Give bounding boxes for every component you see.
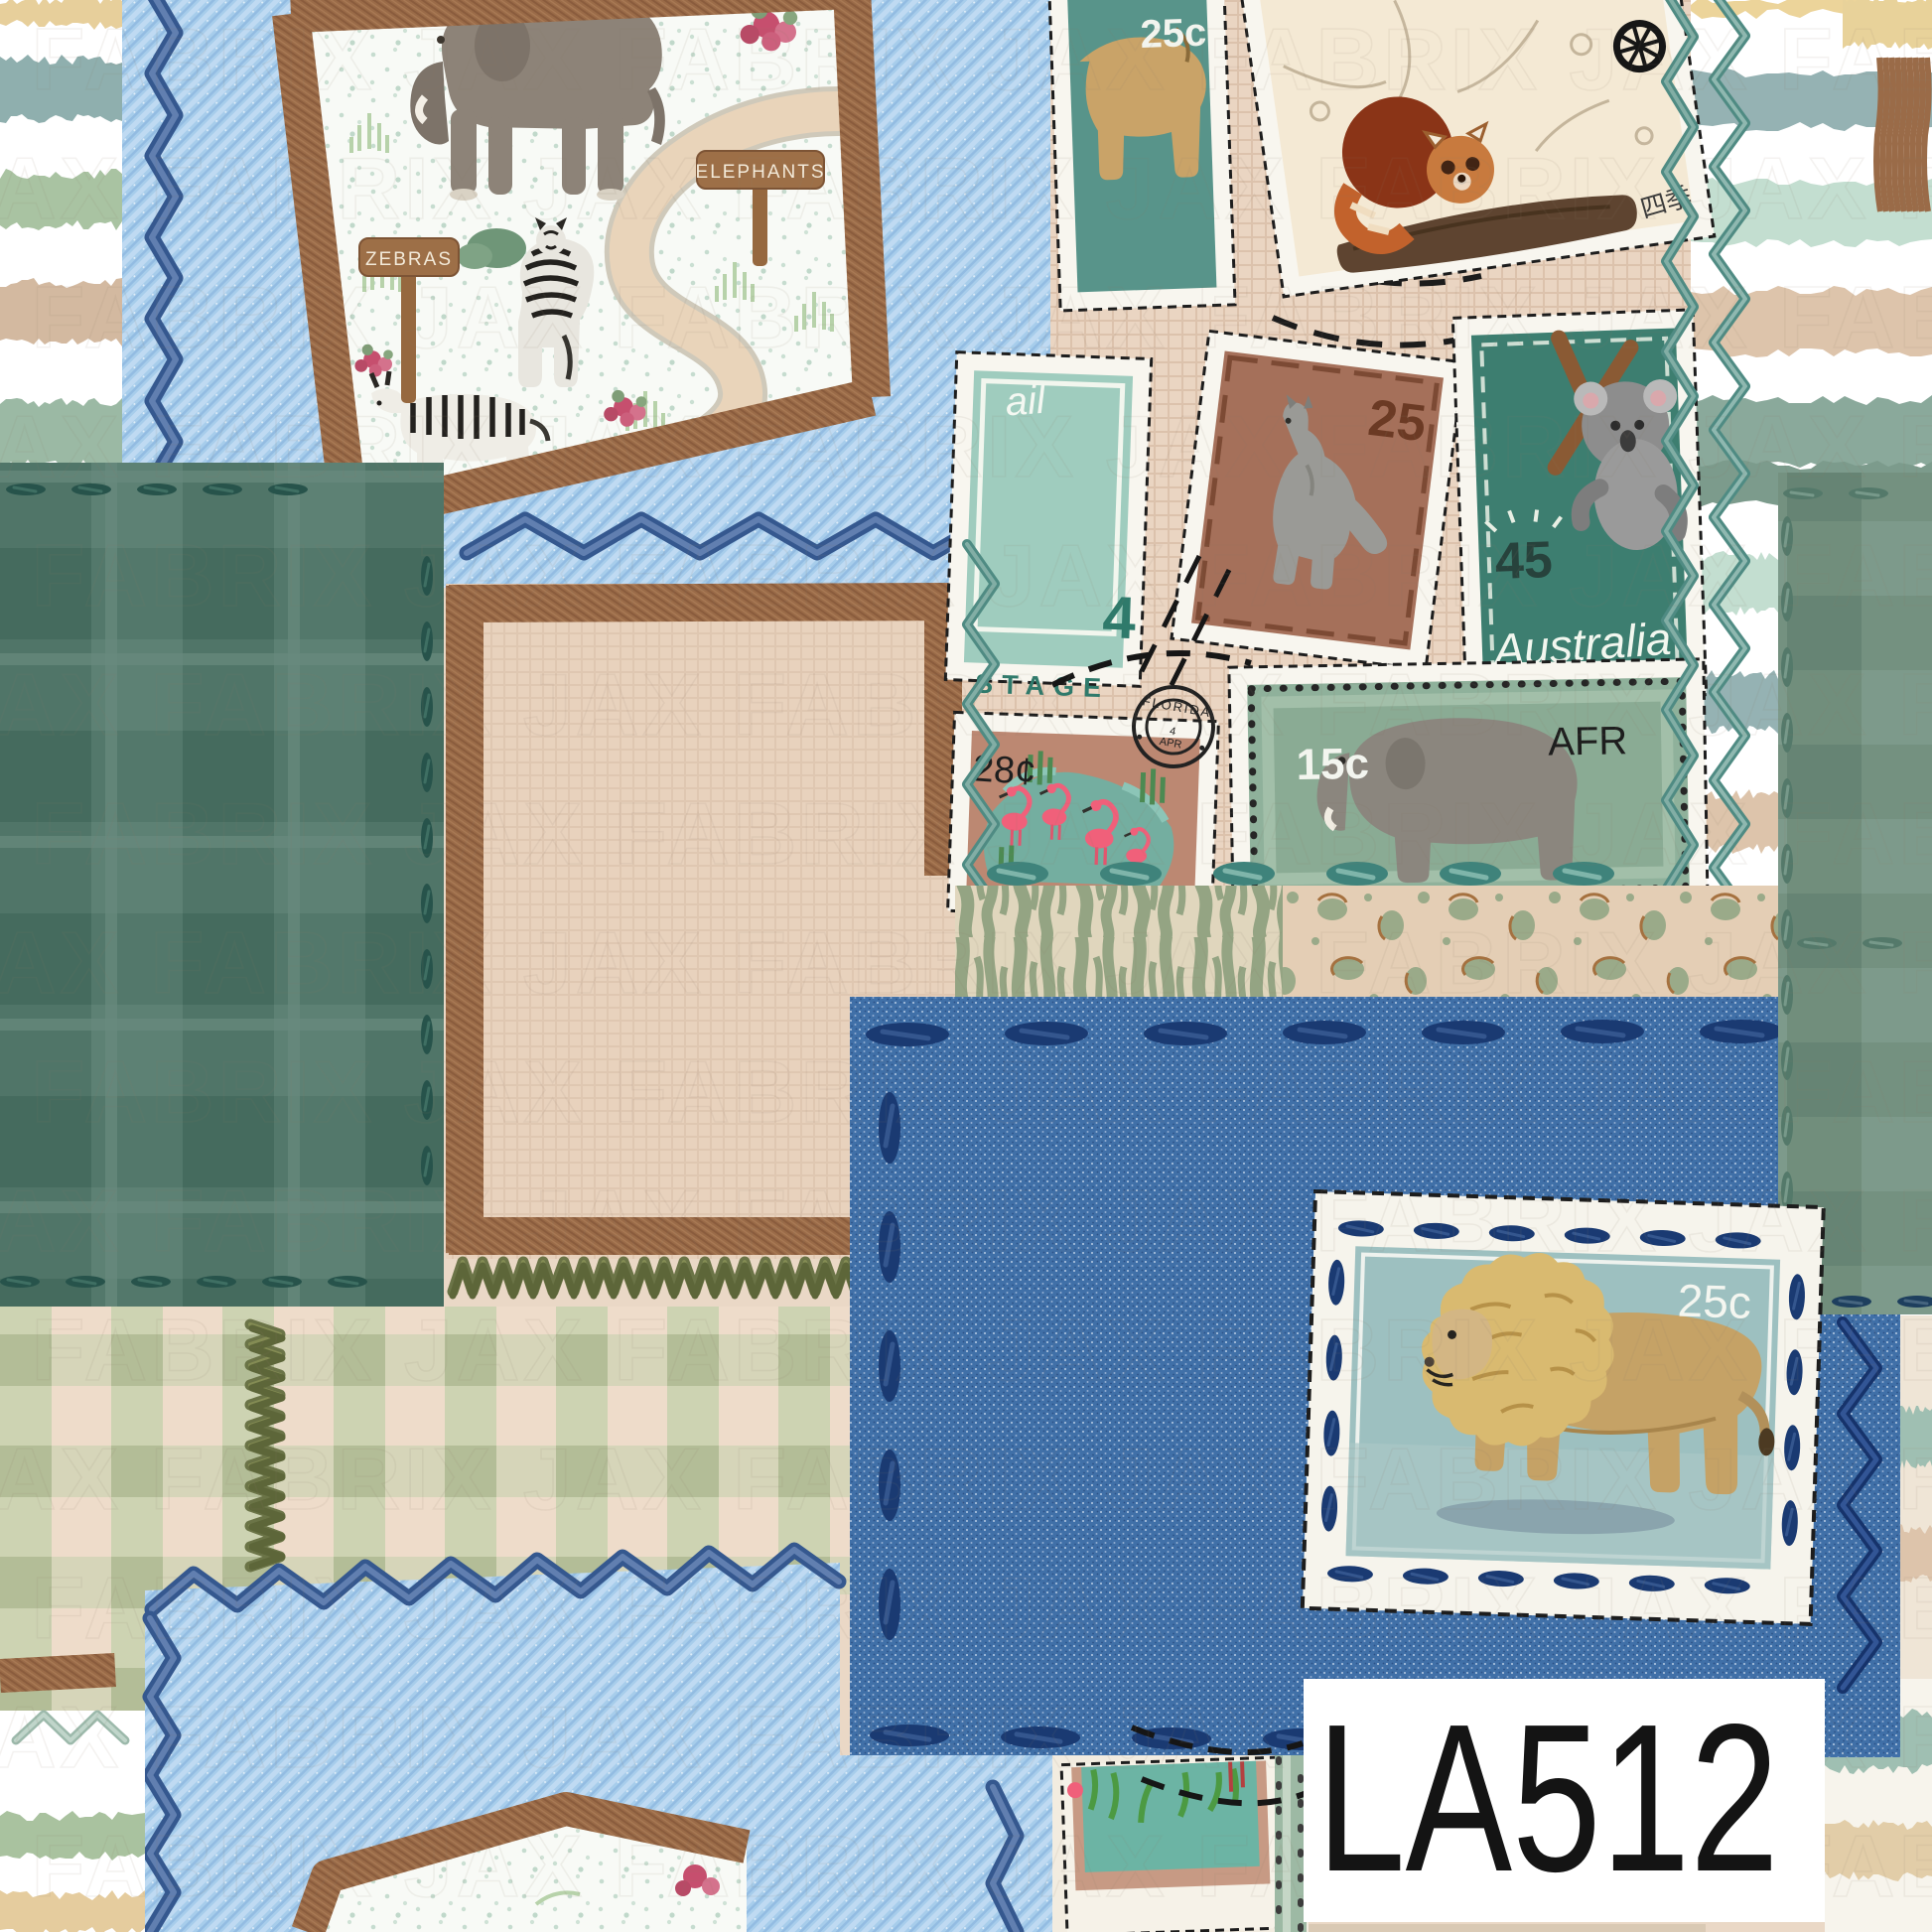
svg-text:JAX FABRIX JAX FABRIX JAX FABR: JAX FABRIX JAX FABRIX JAX FABRIX JAX FAB… <box>0 655 1932 754</box>
svg-text:JAX FABRIX JAX FABRIX JAX FABR: JAX FABRIX JAX FABRIX JAX FABRIX JAX FAB… <box>0 1301 1932 1399</box>
svg-text:JAX FABRIX JAX FABRIX JAX FABR: JAX FABRIX JAX FABRIX JAX FABRIX JAX FAB… <box>0 1172 1932 1270</box>
svg-text:JAX FABRIX JAX FABRIX JAX FABR: JAX FABRIX JAX FABRIX JAX FABRIX JAX FAB… <box>0 10 1932 108</box>
svg-text:LA512: LA512 <box>1316 1681 1779 1915</box>
svg-text:JAX FABRIX JAX FABRIX JAX FABR: JAX FABRIX JAX FABRIX JAX FABRIX JAX FAB… <box>0 397 1932 495</box>
svg-text:JAX FABRIX JAX FABRIX JAX FABR: JAX FABRIX JAX FABRIX JAX FABRIX JAX FAB… <box>0 1042 1932 1141</box>
svg-text:JAX FABRIX JAX FABRIX JAX FABR: JAX FABRIX JAX FABRIX JAX FABRIX JAX FAB… <box>0 139 1932 237</box>
svg-text:JAX FABRIX JAX FABRIX JAX FABR: JAX FABRIX JAX FABRIX JAX FABRIX JAX FAB… <box>0 913 1932 1012</box>
svg-text:JAX FABRIX JAX FABRIX JAX FABR: JAX FABRIX JAX FABRIX JAX FABRIX JAX FAB… <box>0 526 1932 624</box>
svg-text:JAX FABRIX JAX FABRIX JAX FABR: JAX FABRIX JAX FABRIX JAX FABRIX JAX FAB… <box>0 784 1932 883</box>
svg-text:JAX FABRIX JAX FABRIX JAX FABR: JAX FABRIX JAX FABRIX JAX FABRIX JAX FAB… <box>0 1430 1932 1528</box>
svg-text:JAX FABRIX JAX FABRIX JAX FABR: JAX FABRIX JAX FABRIX JAX FABRIX JAX FAB… <box>0 1559 1932 1657</box>
svg-text:JAX FABRIX JAX FABRIX JAX FABR: JAX FABRIX JAX FABRIX JAX FABRIX JAX FAB… <box>0 268 1932 366</box>
svg-text:ZEBRAS: ZEBRAS <box>365 249 453 270</box>
